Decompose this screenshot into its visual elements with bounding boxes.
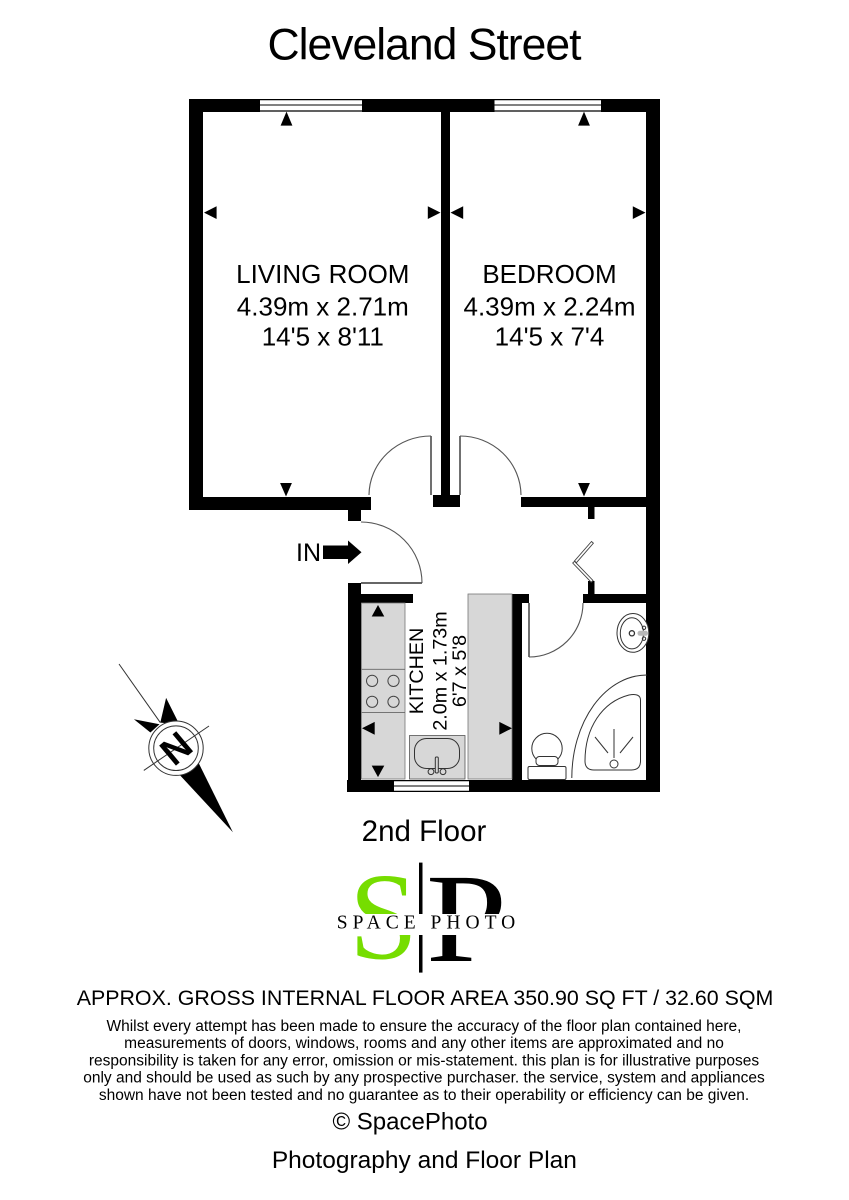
- svg-text:only and should be used as suc: only and should be used as such by any p…: [83, 1070, 765, 1087]
- svg-text:BEDROOM: BEDROOM: [482, 259, 616, 289]
- svg-text:measurements of doors, windows: measurements of doors, windows, rooms an…: [124, 1035, 724, 1052]
- svg-text:Cleveland Street: Cleveland Street: [268, 21, 583, 70]
- svg-text:14'5 x 7'4: 14'5 x 7'4: [495, 322, 605, 352]
- svg-text:IN: IN: [296, 539, 321, 567]
- svg-text:APPROX. GROSS INTERNAL FLOOR A: APPROX. GROSS INTERNAL FLOOR AREA 350.90…: [77, 986, 774, 1010]
- svg-text:SPACE PHOTO: SPACE PHOTO: [337, 913, 520, 934]
- svg-text:2nd Floor: 2nd Floor: [362, 815, 487, 848]
- svg-text:© SpacePhoto: © SpacePhoto: [332, 1109, 487, 1136]
- svg-text:KITCHEN: KITCHEN: [406, 628, 428, 714]
- svg-text:14'5 x 8'11: 14'5 x 8'11: [262, 322, 384, 352]
- svg-text:LIVING ROOM: LIVING ROOM: [236, 259, 409, 289]
- svg-text:responsibility is taken for an: responsibility is taken for any error, o…: [89, 1053, 759, 1070]
- svg-text:Photography and Floor Plan: Photography and Floor Plan: [272, 1147, 577, 1174]
- svg-text:shown have not been tested and: shown have not been tested and no guaran…: [99, 1087, 749, 1104]
- svg-text:Whilst every attempt has been: Whilst every attempt has been made to en…: [106, 1018, 741, 1035]
- svg-text:4.39m x 2.71m: 4.39m x 2.71m: [237, 292, 409, 322]
- svg-text:4.39m x 2.24m: 4.39m x 2.24m: [464, 292, 636, 322]
